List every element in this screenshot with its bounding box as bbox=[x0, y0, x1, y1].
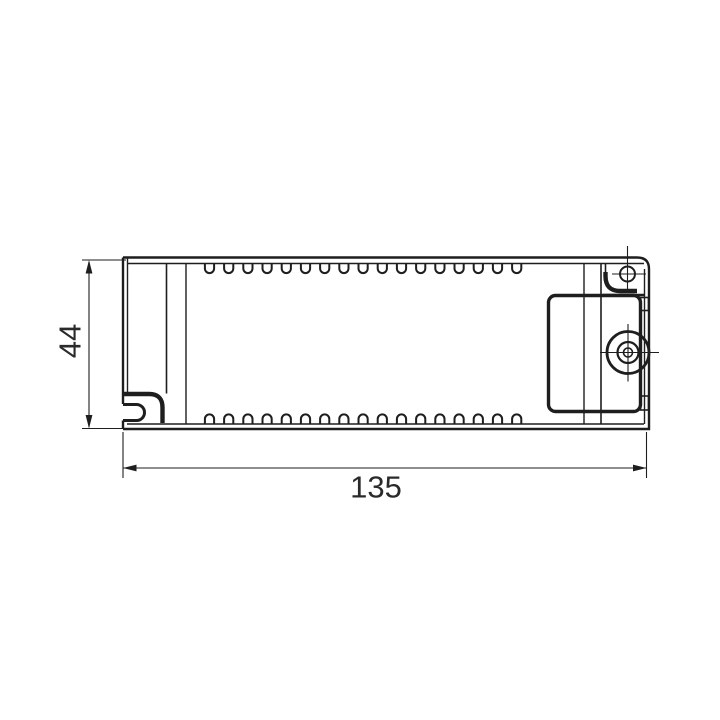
vent-slot bbox=[397, 414, 406, 424]
mounting-screw-hole bbox=[612, 246, 646, 291]
vent-slot bbox=[301, 264, 310, 274]
vent-slot bbox=[282, 414, 291, 424]
mounting-ear-fillet bbox=[606, 272, 638, 291]
vent-slot bbox=[493, 414, 502, 424]
vent-slot bbox=[205, 414, 214, 424]
vent-slot bbox=[378, 414, 387, 424]
enclosure-outer-edge bbox=[123, 258, 649, 430]
vent-slot bbox=[282, 264, 291, 274]
vent-slot bbox=[263, 264, 272, 274]
dimension-height: 44 bbox=[53, 260, 127, 429]
vent-slot bbox=[243, 414, 252, 424]
enclosure-outline bbox=[123, 258, 649, 430]
height-dimension-label: 44 bbox=[53, 324, 88, 358]
vent-slot bbox=[435, 264, 444, 274]
height-arrow-up bbox=[86, 260, 93, 274]
terminal-cover-plate bbox=[549, 296, 641, 412]
vent-slot bbox=[320, 264, 329, 274]
vent-slot bbox=[397, 264, 406, 274]
vent-slot bbox=[243, 264, 252, 274]
vent-slot bbox=[359, 264, 368, 274]
vent-slot bbox=[320, 414, 329, 424]
vent-slot bbox=[455, 414, 464, 424]
vent-slot bbox=[474, 414, 483, 424]
width-arrow-left bbox=[123, 465, 137, 472]
vent-slot bbox=[493, 264, 502, 274]
vent-slot bbox=[263, 414, 272, 424]
terminal-cover bbox=[549, 296, 649, 412]
vent-slot bbox=[455, 264, 464, 274]
vent-slot bbox=[512, 264, 521, 274]
vent-slot bbox=[359, 414, 368, 424]
vent-slot bbox=[301, 414, 310, 424]
vent-slot bbox=[339, 264, 348, 274]
vent-slot bbox=[339, 414, 348, 424]
vent-holes-top bbox=[205, 264, 521, 274]
mounting-slot bbox=[123, 394, 163, 423]
mounting-slot-opening bbox=[123, 405, 145, 421]
vent-slot bbox=[416, 264, 425, 274]
vent-slot bbox=[224, 414, 233, 424]
vent-slot bbox=[416, 414, 425, 424]
vent-slot bbox=[224, 264, 233, 274]
drawing-canvas: 44 135 bbox=[0, 0, 720, 720]
width-dimension-label: 135 bbox=[350, 470, 402, 505]
vent-slot bbox=[435, 414, 444, 424]
dimension-width: 135 bbox=[123, 432, 647, 505]
vent-slot bbox=[205, 264, 214, 274]
technical-drawing: 44 135 bbox=[0, 0, 720, 720]
vent-slot bbox=[378, 264, 387, 274]
vent-slot bbox=[512, 414, 521, 424]
vent-holes-bottom bbox=[205, 414, 521, 424]
width-arrow-right bbox=[633, 465, 647, 472]
vent-slot bbox=[474, 264, 483, 274]
height-arrow-down bbox=[86, 415, 93, 429]
